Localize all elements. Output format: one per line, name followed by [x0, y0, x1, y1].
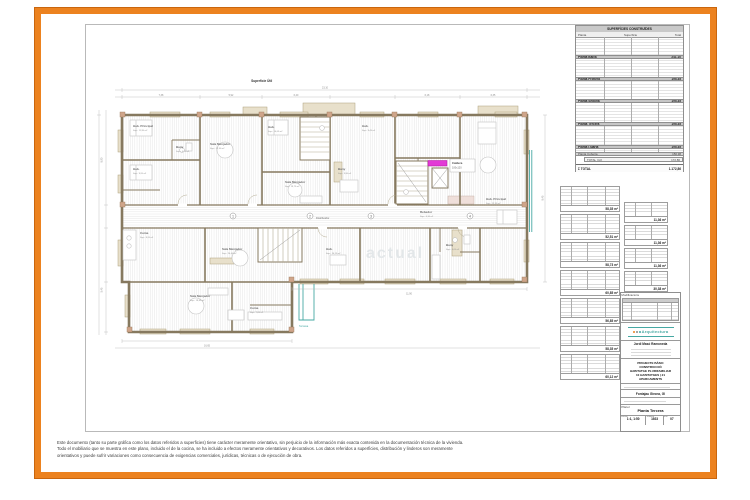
date-section [621, 398, 680, 405]
useful-group: 52,51 m² [560, 214, 620, 240]
page-canvas: actual [0, 0, 750, 500]
svg-text:23,10: 23,10 [322, 87, 329, 90]
svg-text:Hab. Principal: Hab. Principal [486, 197, 506, 201]
section-band: Planta Quarta 195,35 [576, 145, 683, 149]
section-label: Planta Tercera [578, 122, 599, 126]
location-name: Fontajau Girona, GI [636, 392, 665, 396]
plan-watermark: actual [366, 245, 424, 262]
section-label: Planta Coberta [578, 152, 598, 156]
svg-text:8,90: 8,90 [101, 157, 104, 162]
svg-text:Sup.: 9,45 m²: Sup.: 9,45 m² [362, 129, 375, 132]
built-total-row: Σ TOTAL 1.172,86 [576, 164, 683, 172]
useful-rows [625, 272, 667, 286]
svg-text:Sala Menjador: Sala Menjador [285, 180, 306, 184]
col-superficie: Superfície [624, 33, 637, 37]
scale-number-sheet-row: Escala 1:1, 1:50 Número 1923 Full 07 [621, 416, 680, 425]
built-subtotal-row: TOTAL (m²) 172,86 [584, 157, 683, 162]
useful-total: 11,36 m² [654, 264, 666, 268]
svg-text:5,45: 5,45 [101, 287, 104, 292]
col-total: Total [675, 33, 681, 37]
revisions-section: Modificacions [621, 293, 680, 323]
useful-group: 58,35 m² [560, 186, 620, 212]
svg-text:4: 4 [469, 214, 471, 218]
svg-text:Sup.: 19,75 m²: Sup.: 19,75 m² [285, 185, 300, 188]
revisions-table [622, 298, 679, 321]
highlight-label-box: Caldera 100x120 [450, 159, 475, 172]
useful-total: 58,35 m² [605, 207, 618, 211]
useful-group-right: 11,36 m² [624, 225, 668, 246]
svg-text:Sup.: 10,15 m²: Sup.: 10,15 m² [326, 252, 341, 255]
svg-text:Sup.: 4,15 m²: Sup.: 4,15 m² [176, 150, 189, 153]
svg-text:Sala Menjador: Sala Menjador [210, 142, 231, 146]
useful-rows [561, 327, 619, 346]
plan-name: Planta Tercera [637, 409, 663, 413]
total-label: Σ TOTAL [578, 167, 591, 171]
useful-group: 60,12 m² [560, 354, 620, 380]
subtotal-label: TOTAL (m²) [587, 158, 602, 162]
svg-text:Sup.: 9,20 m²: Sup.: 9,20 m² [133, 172, 146, 175]
svg-text:100x120: 100x120 [452, 167, 462, 170]
useful-group: 56,85 m² [560, 298, 620, 324]
svg-text:Sup.: 3,90 m²: Sup.: 3,90 m² [338, 172, 351, 175]
logo-dot-teal [639, 331, 641, 333]
svg-text:Sup.: 12,35 m²: Sup.: 12,35 m² [486, 202, 501, 205]
useful-total: 60,85 m² [605, 291, 618, 295]
svg-text:Bany: Bany [176, 145, 184, 149]
subtotal-value: 172,86 [671, 158, 680, 162]
useful-group: 58,35 m² [560, 326, 620, 352]
svg-text:3: 3 [370, 214, 372, 218]
logo-dot-orange [633, 331, 635, 333]
svg-text:Hab.: Hab. [362, 124, 369, 128]
col-planta: Planta [578, 33, 586, 37]
section-value: 195,35 [671, 122, 681, 126]
svg-text:Sup.: 20,40 m²: Sup.: 20,40 m² [222, 252, 237, 255]
revisions-label: Modificacions [621, 293, 680, 297]
section-band: Planta Primera 195,35 [576, 77, 683, 81]
section-label: Planta Quarta [578, 145, 598, 149]
svg-text:5,92: 5,92 [229, 94, 234, 97]
svg-text:Sup.: 11,95 m²: Sup.: 11,95 m² [133, 129, 147, 132]
useful-total: 60,12 m² [605, 375, 618, 379]
useful-group-right: 11,36 m² [624, 202, 668, 223]
section-value: 195,35 [671, 77, 681, 81]
stair-core-b [258, 228, 302, 262]
number-value: 1923 [646, 417, 662, 421]
svg-text:6,40: 6,40 [294, 94, 299, 97]
section-value: 150,38 [672, 152, 681, 156]
stair-core-c [300, 117, 330, 160]
svg-text:16,65: 16,65 [204, 345, 211, 348]
svg-text:1: 1 [232, 214, 234, 218]
section-label: Planta Segona [578, 99, 600, 103]
svg-text:Hab.: Hab. [133, 167, 140, 171]
svg-text:Terrassa: Terrassa [299, 325, 309, 328]
useful-rows [625, 203, 667, 217]
svg-text:Sup.: 7,65 m²: Sup.: 7,65 m² [250, 311, 263, 314]
section-band: Planta Segona 195,35 [576, 99, 683, 103]
svg-text:Distribuïdor: Distribuïdor [316, 216, 329, 220]
architect-contact-lines [631, 347, 671, 358]
useful-rows [561, 355, 619, 374]
section-label: Planta Primera [578, 77, 600, 81]
svg-text:Sala Menjador: Sala Menjador [190, 294, 211, 298]
section-value: 195,35 [671, 145, 681, 149]
useful-total: 30,38 m² [653, 287, 666, 291]
svg-text:8,45: 8,45 [542, 195, 545, 200]
svg-text:6,35: 6,35 [491, 94, 496, 97]
sheet-value: 07 [664, 417, 680, 421]
useful-total: 11,36 m² [654, 241, 666, 245]
logo-section: Arquitectura [621, 323, 680, 341]
architect-name: Jordi Masó Ramoneda [634, 342, 668, 346]
useful-rows [625, 226, 667, 240]
project-line: APARCAMENTS [639, 377, 662, 381]
svg-text:Sup.: 6,10 m²: Sup.: 6,10 m² [420, 215, 433, 218]
svg-text:Cuina: Cuina [140, 231, 149, 235]
useful-rows [561, 299, 619, 318]
svg-text:Bany: Bany [338, 167, 346, 171]
scale-cell: Escala 1:1, 1:50 [621, 416, 646, 425]
elevator [432, 168, 448, 188]
useful-total: 58,73 m² [605, 263, 618, 267]
useful-rows [625, 249, 667, 263]
useful-rows [561, 187, 619, 206]
svg-text:Hab.: Hab. [326, 247, 333, 251]
useful-total: 56,85 m² [605, 319, 618, 323]
svg-text:2: 2 [309, 214, 311, 218]
stair-core-a [396, 161, 428, 204]
logo-dot-gray [636, 331, 638, 333]
useful-surfaces-title: Superficie Útil [251, 79, 272, 83]
total-value: 1.172,86 [669, 167, 681, 171]
svg-text:Rebedor: Rebedor [420, 210, 433, 214]
section-band: Planta Baixa 241,10 [576, 55, 683, 59]
svg-text:Sup.: 10,05 m²: Sup.: 10,05 m² [268, 130, 283, 133]
section-value: 195,35 [671, 99, 681, 103]
useful-group: 60,85 m² [560, 270, 620, 296]
section-value: 241,10 [671, 55, 681, 59]
section-band: Planta Tercera 195,35 [576, 122, 683, 126]
built-surfaces-table: SUPERFÍCIES CONSTRUÏDES Planta Superfíci… [575, 25, 684, 172]
project-section: PROJECTE BÀSIC CONSTRUCCIÓ HABITATGE PLU… [621, 359, 680, 384]
svg-text:Sup.: 4,05 m²: Sup.: 4,05 m² [446, 248, 459, 251]
highlight-magenta-wall [428, 161, 447, 167]
svg-text:Cuina: Cuina [250, 306, 259, 310]
title-block: Modificacions Arquitectura Jordi Masó Ra… [620, 292, 681, 432]
svg-text:Sup.: 21,30 m²: Sup.: 21,30 m² [210, 147, 225, 150]
number-cell: Número 1923 [646, 416, 663, 425]
svg-text:6,18: 6,18 [425, 94, 430, 97]
svg-text:Sup.: 8,20 m²: Sup.: 8,20 m² [140, 236, 153, 239]
section-label: Planta Baixa [578, 55, 597, 59]
section-band: Planta Coberta 150,38 [576, 152, 683, 156]
useful-group-right: 11,36 m² [624, 248, 668, 269]
built-table-rows: Planta Baixa 241,10 Planta Primera 195,3… [576, 37, 683, 156]
architect-section: Jordi Masó Ramoneda [621, 341, 680, 359]
svg-text:Sala Menjador: Sala Menjador [222, 247, 243, 251]
footer-disclaimer: Este documento (tanto su parte gráfica c… [57, 440, 617, 459]
svg-text:Caldera: Caldera [452, 161, 463, 165]
plan-name-section: Plànol Planta Tercera [621, 405, 680, 416]
logo-rule [628, 336, 674, 337]
useful-total: 52,51 m² [605, 235, 618, 239]
svg-text:Hab. Principal: Hab. Principal [133, 124, 153, 128]
scale-value: 1:1, 1:50 [621, 417, 645, 421]
svg-text:7,38: 7,38 [159, 94, 164, 97]
useful-rows [561, 215, 619, 234]
useful-total: 11,36 m² [654, 218, 666, 222]
svg-text:Sup.: 19,85 m²: Sup.: 19,85 m² [190, 299, 205, 302]
svg-text:Bany: Bany [446, 243, 454, 247]
disclaimer-line: orientativos y puede sufrir variaciones … [57, 453, 617, 459]
useful-group-right: 30,38 m² [624, 271, 668, 292]
logo-wordmark: Arquitectura [642, 329, 669, 334]
svg-text:Hab.: Hab. [268, 125, 275, 129]
useful-total: 58,35 m² [605, 347, 618, 351]
useful-rows [561, 243, 619, 262]
useful-group: 58,73 m² [560, 242, 620, 268]
sheet-cell: Full 07 [664, 416, 680, 425]
location-section: Fontajau Girona, GI [621, 390, 680, 398]
logo-rule [628, 327, 674, 328]
svg-text:11,90: 11,90 [406, 293, 412, 296]
caldera-closet [448, 196, 474, 204]
useful-rows [561, 271, 619, 290]
built-table-title: SUPERFÍCIES CONSTRUÏDES [607, 27, 652, 31]
